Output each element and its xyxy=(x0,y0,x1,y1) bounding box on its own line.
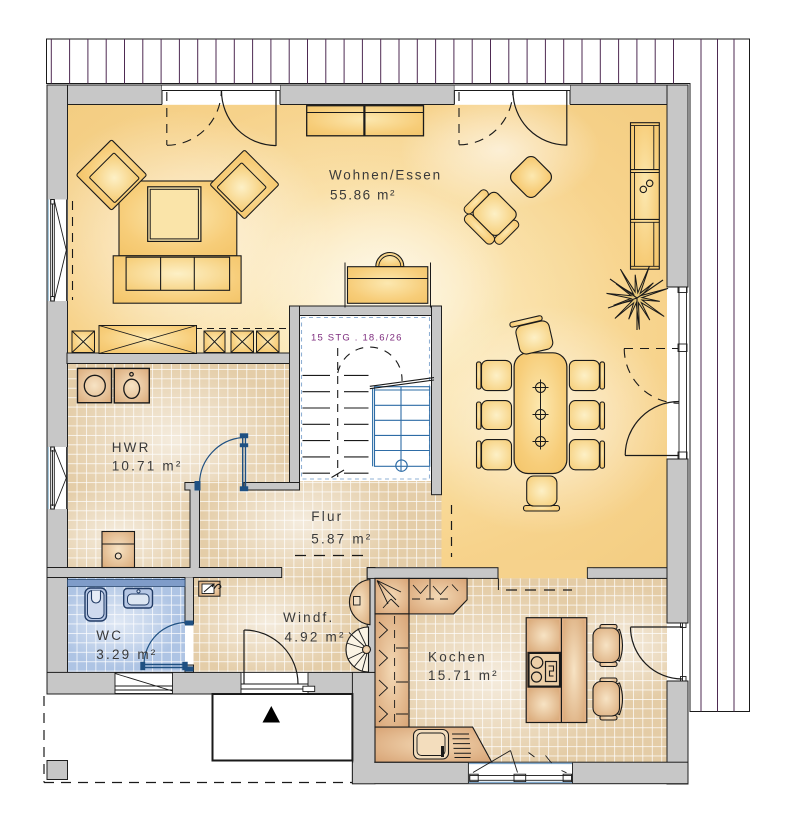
svg-text:10.71 m²: 10.71 m² xyxy=(112,459,183,474)
svg-text:15 STG . 18.6/26: 15 STG . 18.6/26 xyxy=(311,333,403,344)
svg-text:Flur: Flur xyxy=(311,509,343,524)
svg-text:55.86 m²: 55.86 m² xyxy=(330,188,396,203)
svg-text:WC: WC xyxy=(96,628,123,643)
svg-text:4.92 m²: 4.92 m² xyxy=(285,630,346,645)
svg-text:Kochen: Kochen xyxy=(428,650,487,665)
svg-text:Windf.: Windf. xyxy=(283,610,334,625)
svg-text:15.71 m²: 15.71 m² xyxy=(428,668,499,683)
svg-text:HWR: HWR xyxy=(112,440,151,455)
svg-text:5.87 m²: 5.87 m² xyxy=(311,532,372,547)
svg-text:3.29 m²: 3.29 m² xyxy=(96,647,157,662)
svg-text:Wohnen/Essen: Wohnen/Essen xyxy=(329,168,442,183)
